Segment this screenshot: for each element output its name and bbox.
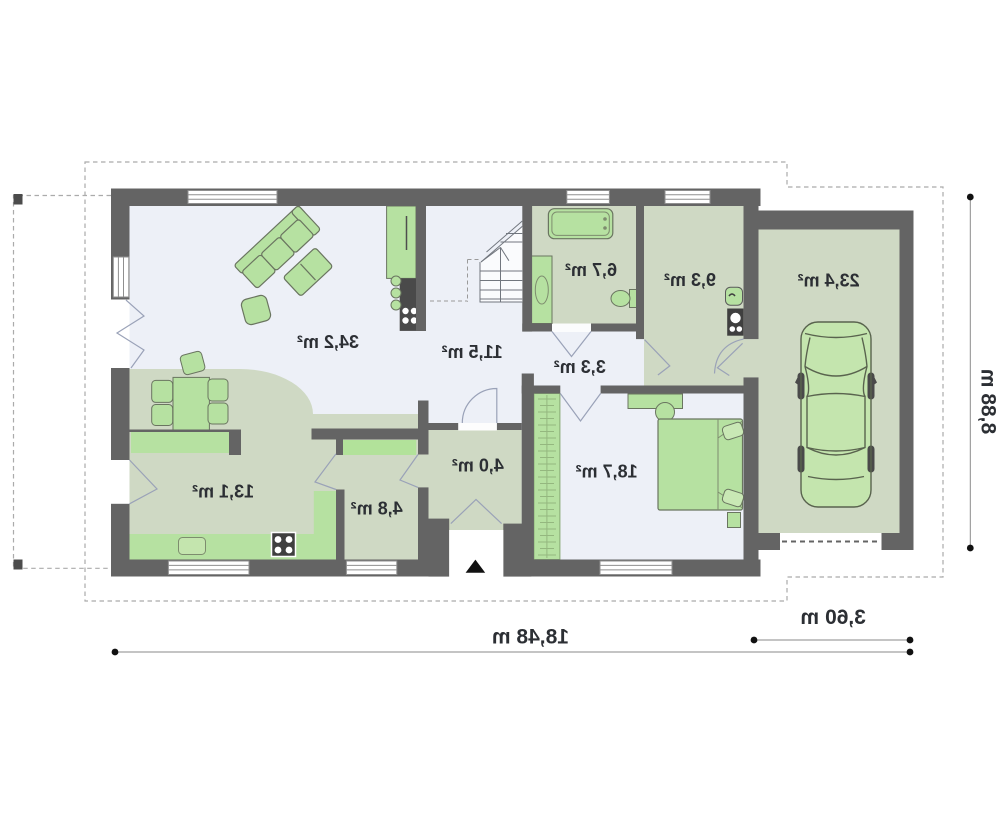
svg-text:18,48 m: 18,48 m xyxy=(492,626,569,649)
svg-text:8,88 m: 8,88 m xyxy=(977,369,1000,434)
svg-text:6,7 m²: 6,7 m² xyxy=(565,260,617,280)
svg-text:11,5 m²: 11,5 m² xyxy=(442,342,503,362)
svg-text:9,3 m²: 9,3 m² xyxy=(664,270,716,290)
svg-text:4,8 m²: 4,8 m² xyxy=(351,499,403,519)
svg-text:23,4 m²: 23,4 m² xyxy=(798,270,860,290)
svg-text:3,3 m²: 3,3 m² xyxy=(554,357,606,377)
svg-text:4,0 m²: 4,0 m² xyxy=(452,455,504,475)
svg-text:13,1 m²: 13,1 m² xyxy=(192,481,254,501)
svg-text:18,7 m²: 18,7 m² xyxy=(576,462,638,482)
svg-text:3,60 m: 3,60 m xyxy=(801,606,866,629)
svg-text:34,2 m²: 34,2 m² xyxy=(297,332,359,352)
